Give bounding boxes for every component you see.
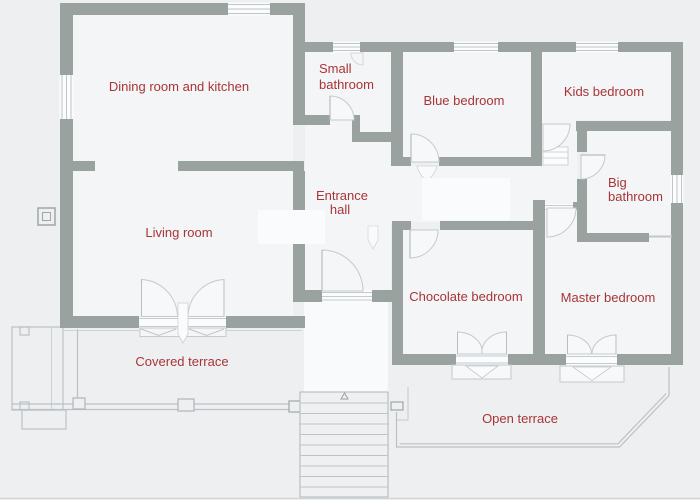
svg-text:hall: hall	[330, 202, 350, 217]
svg-text:bathroom: bathroom	[319, 77, 374, 92]
svg-text:Covered terrace: Covered terrace	[135, 354, 228, 369]
svg-text:Chocolate bedroom: Chocolate bedroom	[409, 289, 522, 304]
svg-text:Master bedroom: Master bedroom	[561, 290, 656, 305]
svg-text:bathroom: bathroom	[608, 189, 663, 204]
svg-text:Open terrace: Open terrace	[482, 411, 558, 426]
svg-text:Small: Small	[319, 61, 352, 76]
svg-text:Big: Big	[608, 175, 627, 190]
svg-text:Dining room and kitchen: Dining room and kitchen	[109, 79, 249, 94]
svg-text:Entrance: Entrance	[316, 188, 368, 203]
svg-text:Living room: Living room	[145, 225, 212, 240]
svg-text:Blue bedroom: Blue bedroom	[424, 93, 505, 108]
svg-text:Kids bedroom: Kids bedroom	[564, 84, 644, 99]
